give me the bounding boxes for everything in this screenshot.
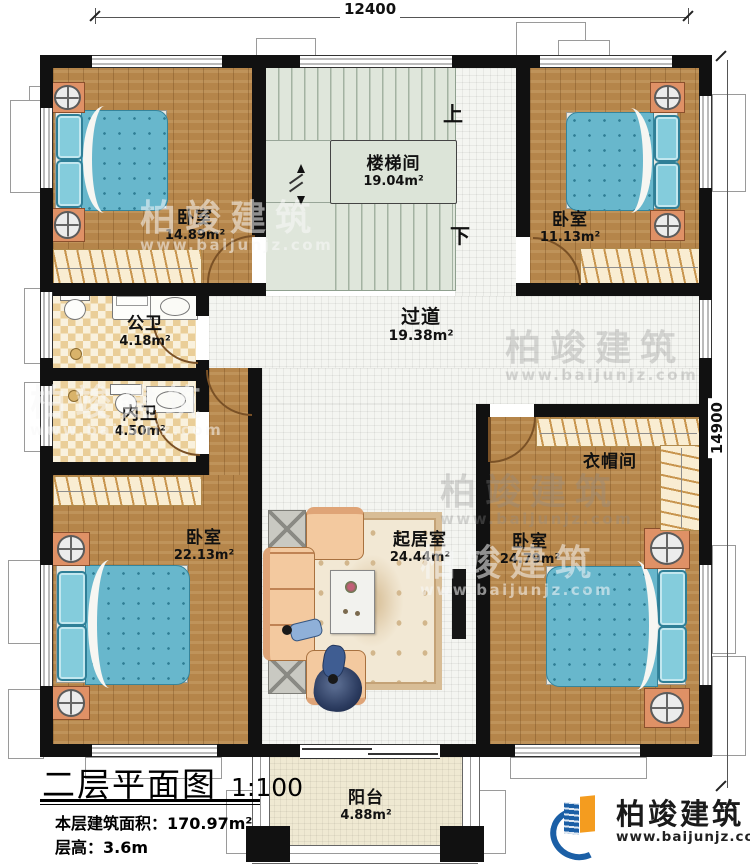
window — [300, 55, 452, 68]
wall-segment — [40, 368, 196, 381]
bed — [56, 565, 188, 683]
pillow — [654, 162, 680, 209]
wardrobe — [580, 248, 701, 285]
bed — [566, 112, 678, 209]
exterior-bay — [712, 656, 746, 756]
corridor-floor — [262, 368, 699, 404]
room-label-public-bath: 公卫 4.18m² — [95, 314, 195, 349]
nightstand — [644, 688, 690, 728]
corner-table — [268, 510, 306, 548]
cup — [355, 611, 360, 616]
person-head — [328, 674, 338, 684]
room-label-corridor: 过道 19.38m² — [371, 306, 471, 345]
washer-panel — [116, 296, 148, 306]
brand-name: 柏竣建筑 — [616, 799, 750, 829]
bath-accessory — [70, 348, 82, 360]
floor-area-line: 本层建筑面积：170.97m² — [55, 810, 252, 834]
dimension-tick — [715, 50, 726, 61]
pillow — [658, 626, 687, 683]
wall-segment — [534, 404, 712, 417]
tv — [452, 569, 466, 639]
wall-segment — [196, 360, 209, 412]
flower-decor — [345, 581, 357, 593]
pillow — [57, 625, 87, 681]
lamp-icon — [54, 211, 80, 238]
sliding-door — [300, 744, 440, 759]
window — [92, 55, 222, 68]
logo-building-orange — [580, 795, 595, 833]
nightstand — [50, 208, 85, 242]
floor-plan: 12400 14900 楼梯间 19.04m² 上 — [0, 0, 750, 865]
exterior-bay — [712, 545, 736, 654]
logo-building-blue — [564, 802, 579, 835]
door-leaf — [488, 417, 491, 462]
lamp-icon — [57, 689, 85, 716]
stair-direction-arrow-down — [297, 196, 305, 205]
lamp-icon — [54, 85, 80, 110]
nightstand — [50, 82, 85, 113]
bed — [546, 566, 686, 685]
wardrobe-cloakroom — [660, 445, 701, 531]
person — [318, 640, 348, 688]
title-rule — [40, 799, 260, 802]
window — [699, 300, 712, 358]
wall-segment — [252, 55, 266, 237]
room-label-living: 起居室 24.44m² — [370, 530, 470, 565]
bed-sheet-fold — [88, 560, 131, 687]
sliding-door-panel — [368, 753, 438, 755]
brand-url: www.baijunjz.com — [616, 829, 750, 845]
pillow — [56, 114, 83, 160]
stair-treads-upper — [278, 68, 450, 140]
window — [40, 292, 53, 358]
corridor-floor — [455, 68, 516, 296]
bed-sheet-fold — [615, 561, 658, 690]
exterior-bay — [712, 94, 746, 192]
nightstand — [52, 532, 90, 566]
lamp-icon — [650, 692, 684, 723]
pillow — [658, 570, 687, 627]
stair-down-label: 下 — [450, 220, 470, 249]
nightstand — [52, 686, 90, 720]
sliding-door-panel — [302, 748, 372, 750]
window — [540, 55, 672, 68]
pillow — [57, 571, 87, 626]
dimension-right-label: 14900 — [708, 398, 726, 458]
pillow — [654, 115, 680, 162]
room-label-ensuite-bath: 内卫 4.50m² — [90, 404, 190, 439]
stair-guide-line — [266, 140, 330, 141]
exterior-bay — [8, 560, 44, 644]
wall-segment — [196, 296, 209, 316]
room-label-bedroom-tl: 卧室 14.89m² — [145, 208, 245, 243]
window — [699, 96, 712, 188]
window — [40, 565, 53, 686]
bed-sheet-fold — [609, 108, 652, 213]
balcony-post — [246, 826, 290, 862]
wall-segment — [40, 462, 209, 475]
wardrobe — [53, 476, 202, 506]
coffee-table — [330, 570, 375, 634]
stairwell-area: 19.04m² — [363, 174, 423, 189]
bed — [55, 110, 167, 209]
window — [40, 386, 53, 446]
bed-sheet-fold — [83, 106, 126, 213]
cup — [343, 609, 348, 614]
title-rule — [40, 804, 260, 805]
room-label-bedroom-tr: 卧室 11.13m² — [520, 210, 620, 245]
window — [515, 744, 640, 757]
window — [92, 744, 217, 757]
person-head — [282, 625, 292, 635]
window — [40, 108, 53, 188]
corner-table — [268, 656, 306, 694]
balcony-post — [440, 826, 484, 862]
dimension-tick — [715, 780, 726, 791]
dimension-top-label: 12400 — [340, 0, 400, 18]
nightstand — [650, 210, 685, 241]
nightstand — [650, 82, 685, 113]
dimension-line-right — [727, 60, 728, 788]
floor-height-line: 层高：3.6m — [55, 834, 148, 858]
room-label-bedroom-bl: 卧室 22.13m² — [154, 528, 254, 563]
brand-logo-icon — [552, 794, 606, 850]
lamp-icon — [57, 535, 85, 562]
exterior-bay — [510, 757, 647, 779]
person-body — [288, 617, 323, 642]
stairwell-label-box: 楼梯间 19.04m² — [330, 140, 457, 204]
room-label-balcony: 阳台 4.88m² — [316, 788, 416, 823]
scale-label: 1:100 — [231, 773, 303, 802]
wardrobe — [53, 249, 202, 286]
bath-accessory — [68, 390, 80, 402]
lamp-icon — [654, 85, 680, 110]
brand-logo: 柏竣建筑 www.baijunjz.com — [552, 794, 750, 850]
lamp-icon — [654, 213, 680, 238]
toilet-bowl — [64, 299, 86, 320]
room-label-bedroom-br: 卧室 24.79m² — [480, 532, 580, 567]
nightstand — [644, 528, 690, 569]
stairwell-name: 楼梯间 — [363, 154, 423, 174]
stair-direction-arrow-up — [297, 164, 305, 173]
room-label-cloakroom: 衣帽间 — [560, 452, 660, 472]
window — [699, 565, 712, 685]
lamp-icon — [650, 532, 684, 564]
stair-up-label: 上 — [443, 98, 463, 127]
wardrobe-cloakroom — [536, 418, 701, 447]
exterior-bay — [8, 689, 44, 759]
stair-treads-lower — [335, 202, 453, 290]
pillow — [56, 160, 83, 208]
wall-segment — [40, 283, 266, 296]
